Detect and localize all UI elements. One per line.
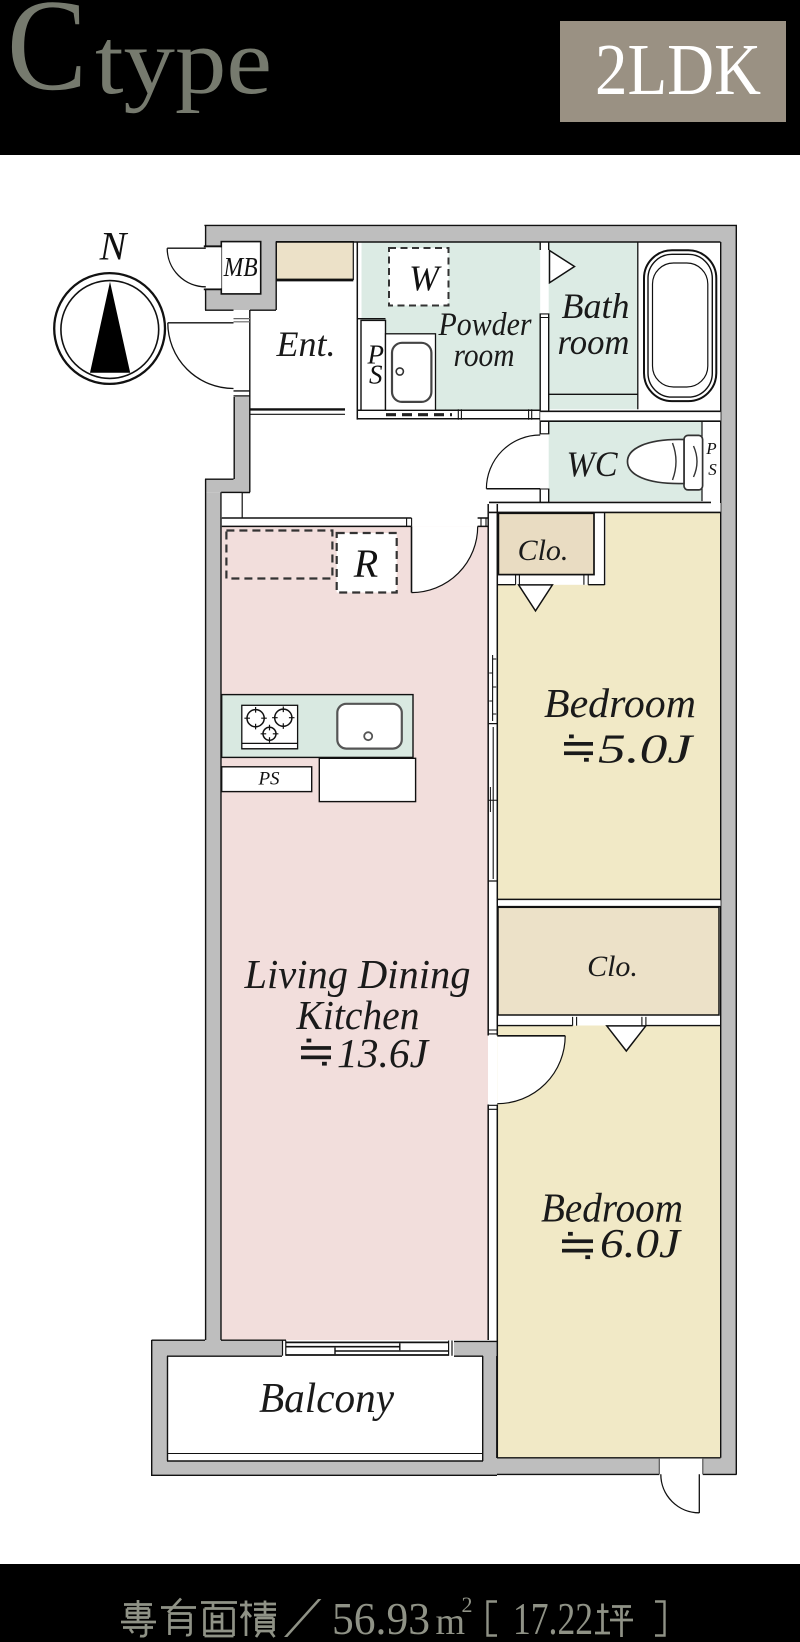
svg-text:type: type (95, 10, 272, 114)
svg-text:WC: WC (567, 444, 619, 484)
svg-text:C: C (7, 0, 87, 118)
svg-text:PS: PS (257, 769, 280, 790)
svg-text:MB: MB (223, 252, 258, 282)
svg-text:Balcony: Balcony (259, 1376, 394, 1422)
svg-text:Clo.: Clo. (587, 950, 638, 983)
svg-text:Bath: Bath (562, 286, 630, 326)
svg-text:Living Dining: Living Dining (244, 951, 471, 997)
svg-text:R: R (353, 541, 378, 586)
svg-text:S: S (708, 460, 717, 479)
svg-text:Ent.: Ent. (276, 324, 336, 364)
svg-text:S: S (369, 360, 383, 390)
svg-text:Clo.: Clo. (518, 534, 569, 567)
svg-text:2LDK: 2LDK (595, 29, 761, 110)
svg-text:W: W (409, 258, 442, 298)
svg-text:room: room (454, 338, 515, 374)
svg-text:room: room (558, 322, 630, 362)
svg-text:17.22: 17.22 (513, 1593, 593, 1642)
svg-text:2: 2 (462, 1592, 473, 1617)
svg-text:13.6J: 13.6J (337, 1030, 430, 1076)
svg-text:5.0J: 5.0J (598, 726, 694, 772)
svg-text:6.0J: 6.0J (600, 1220, 682, 1266)
svg-text:N: N (99, 224, 129, 269)
svg-text:Bedroom: Bedroom (544, 680, 696, 726)
svg-text:P: P (705, 439, 716, 458)
svg-text:56.93: 56.93 (332, 1593, 430, 1642)
